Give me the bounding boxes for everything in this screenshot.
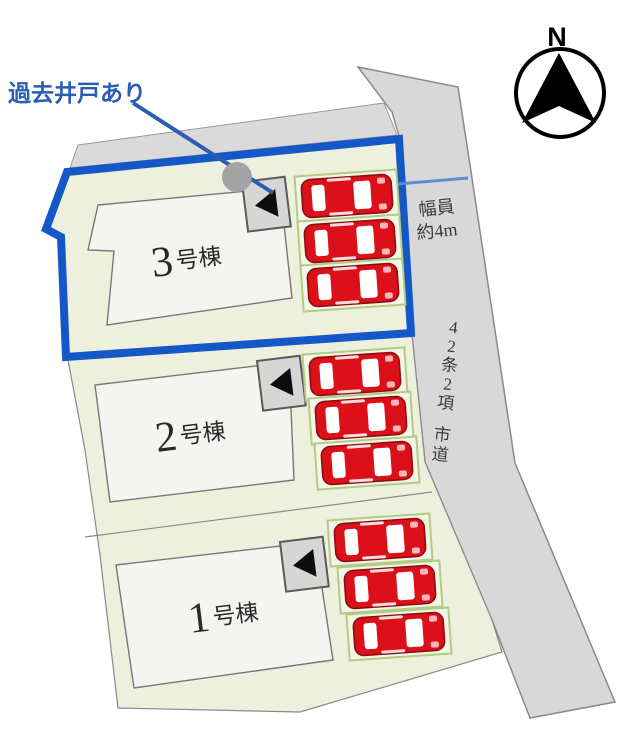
road-name-char: 条 xyxy=(440,355,459,376)
car-icon xyxy=(328,513,433,566)
entrance-arrow-icon-building-1 xyxy=(280,537,329,592)
car-icon xyxy=(347,607,452,660)
road-width-line2: 約4m xyxy=(416,219,459,243)
road-width-line1: 幅員 xyxy=(418,196,456,220)
car-icon xyxy=(338,560,443,613)
road-name-char: 市 xyxy=(433,425,452,446)
car-icon xyxy=(315,436,420,489)
car-icon xyxy=(301,258,406,311)
site-plan-page: 3号棟 2号棟 1号棟 幅員 約4m 4 2 条 2 項 市 道 過去井戸あり … xyxy=(0,0,623,729)
north-compass-icon: N xyxy=(516,22,604,137)
compass-needle xyxy=(522,53,596,123)
road-name-char: 項 xyxy=(436,393,455,414)
car-icon xyxy=(309,391,414,444)
site-plan: 3号棟 2号棟 1号棟 幅員 約4m 4 2 条 2 項 市 道 過去井戸あり … xyxy=(0,0,623,729)
entrance-arrow-icon-building-2 xyxy=(257,356,306,411)
road-name-char: 道 xyxy=(431,444,450,465)
car-icon xyxy=(295,169,400,222)
annotation-label: 過去井戸あり xyxy=(8,80,146,106)
well-circle xyxy=(222,162,252,192)
